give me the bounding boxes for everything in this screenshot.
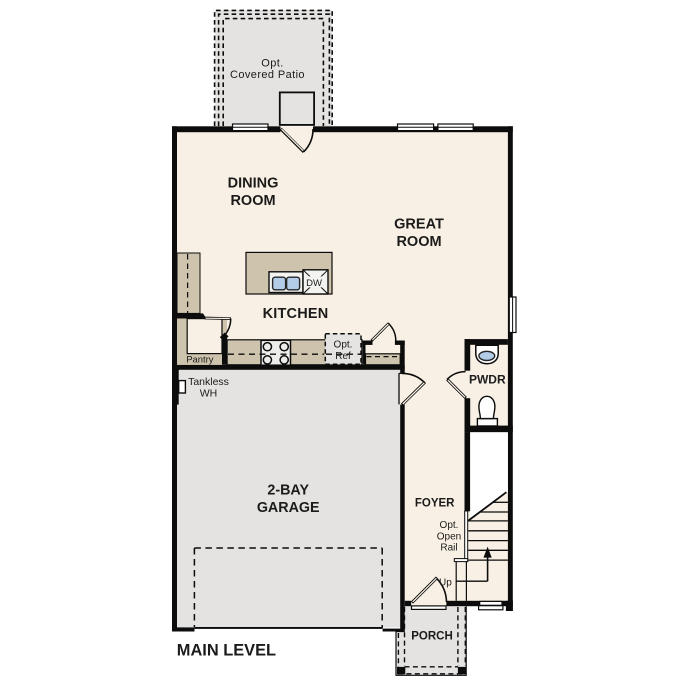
- svg-text:Ref: Ref: [335, 351, 351, 362]
- svg-text:PORCH: PORCH: [411, 631, 453, 643]
- svg-text:Rail: Rail: [440, 543, 457, 554]
- svg-text:ROOM: ROOM: [230, 193, 275, 209]
- svg-text:GARAGE: GARAGE: [257, 500, 320, 516]
- svg-text:GREAT: GREAT: [394, 217, 444, 233]
- svg-text:2-BAY: 2-BAY: [267, 482, 309, 498]
- svg-text:MAIN LEVEL: MAIN LEVEL: [177, 642, 276, 660]
- svg-text:Up: Up: [439, 577, 452, 588]
- svg-text:KITCHEN: KITCHEN: [263, 306, 329, 322]
- svg-text:PWDR: PWDR: [469, 373, 506, 387]
- svg-text:Pantry: Pantry: [186, 354, 213, 365]
- svg-text:Opt.: Opt.: [440, 520, 459, 531]
- svg-text:Opt.: Opt.: [334, 340, 353, 351]
- svg-text:WH: WH: [200, 388, 218, 400]
- svg-text:Covered Patio: Covered Patio: [230, 69, 305, 81]
- svg-text:Open: Open: [437, 532, 461, 543]
- svg-text:Opt.: Opt.: [261, 58, 283, 70]
- svg-text:ROOM: ROOM: [396, 234, 441, 250]
- svg-text:Tankless: Tankless: [188, 376, 229, 388]
- svg-text:FOYER: FOYER: [415, 498, 455, 510]
- svg-text:DW: DW: [306, 278, 322, 289]
- svg-text:DINING: DINING: [228, 175, 279, 191]
